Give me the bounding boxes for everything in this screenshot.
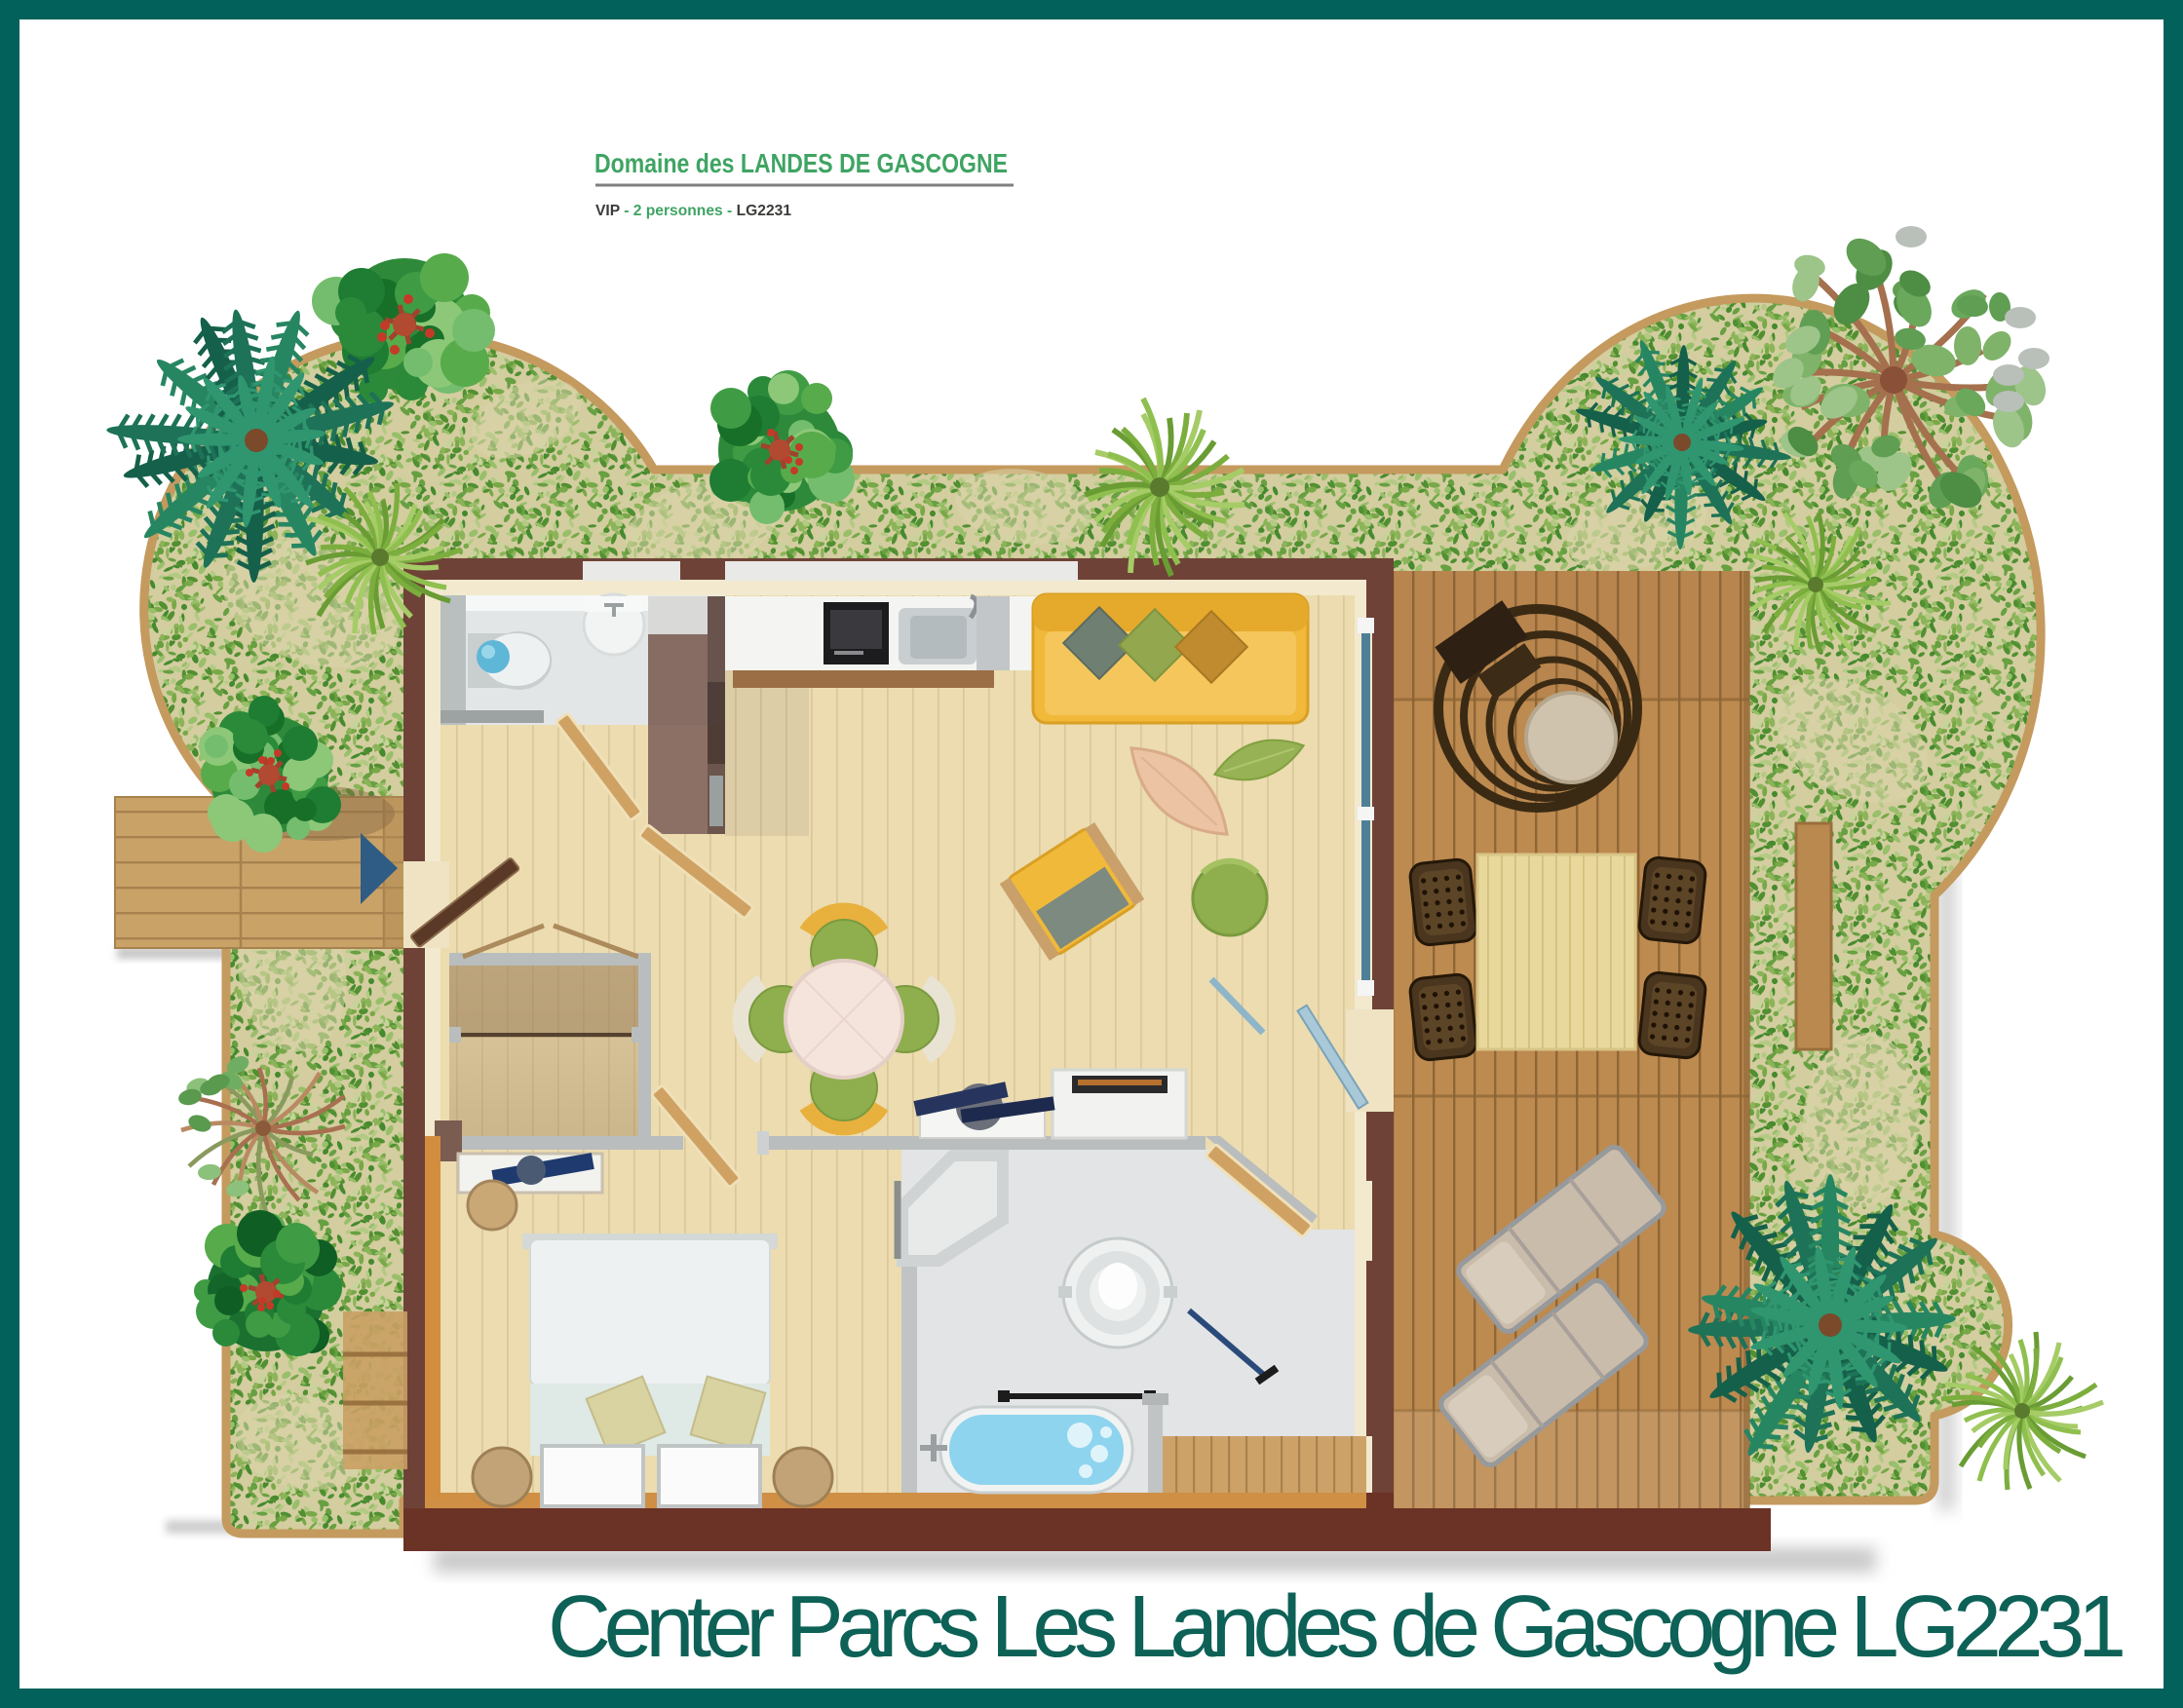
svg-text:Center Parcs Les Landes de Gas: Center Parcs Les Landes de Gascogne LG22… [548, 1578, 2126, 1676]
svg-text:VIP - 2 personnes - LG2231: VIP - 2 personnes - LG2231 [595, 203, 791, 219]
svg-text:Domaine des LANDES DE GASCOGNE: Domaine des LANDES DE GASCOGNE [594, 148, 1008, 178]
